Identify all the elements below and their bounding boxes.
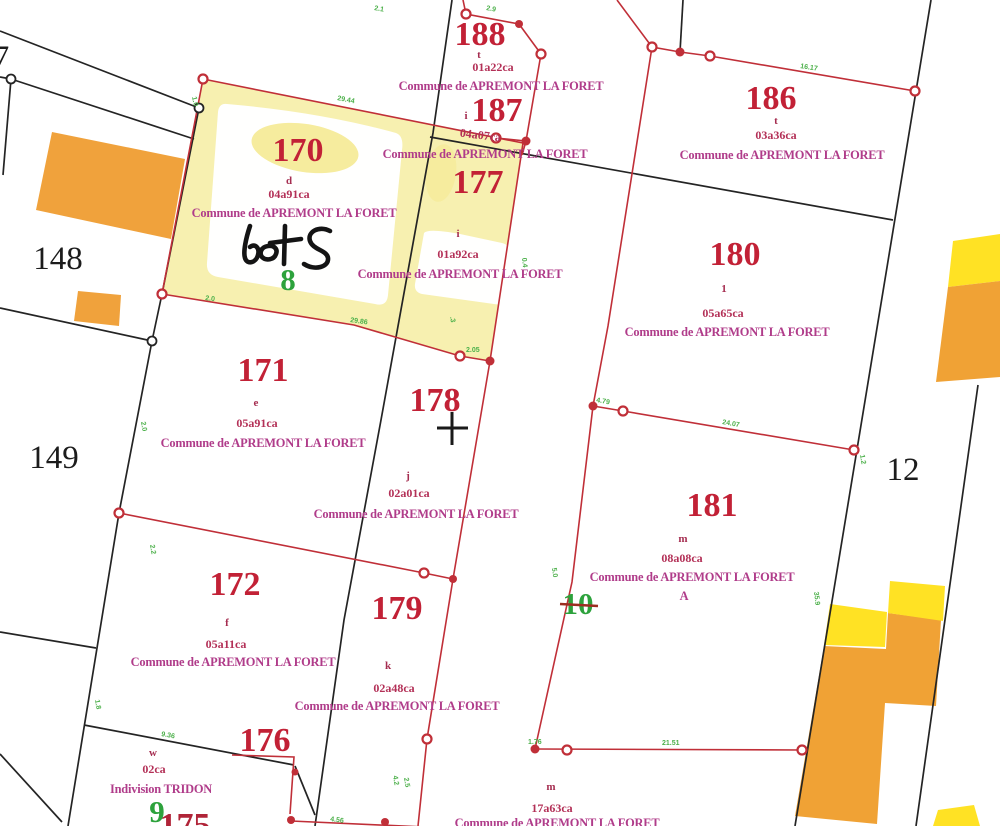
- svg-text:Commune de APREMONT LA FORET: Commune de APREMONT LA FORET: [383, 147, 589, 161]
- svg-text:176: 176: [240, 722, 291, 759]
- svg-text:180: 180: [710, 236, 761, 273]
- svg-text:Commune de APREMONT LA FORET: Commune de APREMONT LA FORET: [358, 267, 564, 281]
- svg-text:1: 1: [721, 283, 727, 295]
- svg-text:k: k: [385, 660, 392, 672]
- svg-text:7: 7: [0, 40, 9, 76]
- svg-text:188: 188: [455, 16, 506, 53]
- svg-text:17a63ca: 17a63ca: [531, 801, 572, 815]
- svg-text:Commune de APREMONT LA FORET: Commune de APREMONT LA FORET: [590, 570, 796, 584]
- svg-text:t: t: [774, 115, 778, 127]
- svg-text:01a22ca: 01a22ca: [472, 60, 513, 74]
- svg-text:d: d: [286, 175, 292, 187]
- svg-text:149: 149: [29, 440, 79, 476]
- svg-text:02a48ca: 02a48ca: [373, 681, 414, 695]
- svg-text:5.0: 5.0: [550, 567, 558, 578]
- svg-text:05a65ca: 05a65ca: [702, 306, 743, 320]
- svg-text:Commune de APREMONT LA FORET: Commune de APREMONT LA FORET: [399, 79, 605, 93]
- svg-text:2.05: 2.05: [466, 347, 480, 354]
- svg-text:178: 178: [410, 382, 461, 419]
- svg-text:8: 8: [280, 262, 296, 297]
- svg-text:Commune de APREMONT LA FORET: Commune de APREMONT LA FORET: [295, 699, 501, 713]
- svg-text:1.76: 1.76: [528, 739, 542, 746]
- svg-text:i: i: [456, 228, 459, 240]
- svg-text:j: j: [405, 470, 410, 482]
- svg-text:Commune de APREMONT LA FORET: Commune de APREMONT LA FORET: [680, 148, 886, 162]
- svg-text:Commune de APREMONT LA FORET: Commune de APREMONT LA FORET: [455, 816, 661, 826]
- svg-text:172: 172: [210, 566, 261, 603]
- svg-text:04a91ca: 04a91ca: [268, 187, 309, 201]
- svg-text:05a11ca: 05a11ca: [206, 637, 247, 651]
- svg-text:01a92ca: 01a92ca: [437, 247, 478, 261]
- svg-text:175: 175: [160, 807, 211, 826]
- svg-text:12: 12: [887, 452, 920, 488]
- svg-text:03a36ca: 03a36ca: [755, 128, 796, 142]
- svg-text:21.51: 21.51: [662, 740, 680, 747]
- svg-text:181: 181: [687, 487, 738, 524]
- svg-text:i: i: [464, 110, 467, 122]
- svg-text:Commune de APREMONT LA FORET: Commune de APREMONT LA FORET: [192, 206, 398, 220]
- svg-text:Commune de APREMONT LA FORET: Commune de APREMONT LA FORET: [161, 436, 367, 450]
- svg-text:08a08ca: 08a08ca: [661, 551, 702, 565]
- svg-text:171: 171: [238, 352, 289, 389]
- svg-text:f: f: [225, 617, 229, 629]
- svg-text:2.0: 2.0: [205, 295, 216, 303]
- svg-text:179: 179: [372, 590, 423, 627]
- svg-text:e: e: [254, 397, 259, 409]
- svg-text:177: 177: [453, 164, 504, 201]
- svg-text:Commune de APREMONT LA FORET: Commune de APREMONT LA FORET: [625, 325, 831, 339]
- svg-text:05a91ca: 05a91ca: [236, 416, 277, 430]
- svg-text:9: 9: [149, 794, 165, 826]
- svg-text:148: 148: [33, 241, 83, 277]
- svg-text:Commune de APREMONT LA FORET: Commune de APREMONT LA FORET: [314, 507, 520, 521]
- svg-text:m: m: [678, 533, 687, 545]
- svg-text:m: m: [546, 781, 555, 793]
- svg-text:02ca: 02ca: [142, 762, 165, 776]
- svg-text:187: 187: [472, 92, 523, 129]
- svg-text:02a01ca: 02a01ca: [388, 486, 429, 500]
- svg-text:186: 186: [746, 80, 797, 117]
- svg-text:170: 170: [273, 132, 324, 169]
- svg-text:Commune de APREMONT LA FORET: Commune de APREMONT LA FORET: [131, 655, 337, 669]
- svg-text:A: A: [680, 589, 689, 603]
- svg-text:w: w: [149, 747, 157, 759]
